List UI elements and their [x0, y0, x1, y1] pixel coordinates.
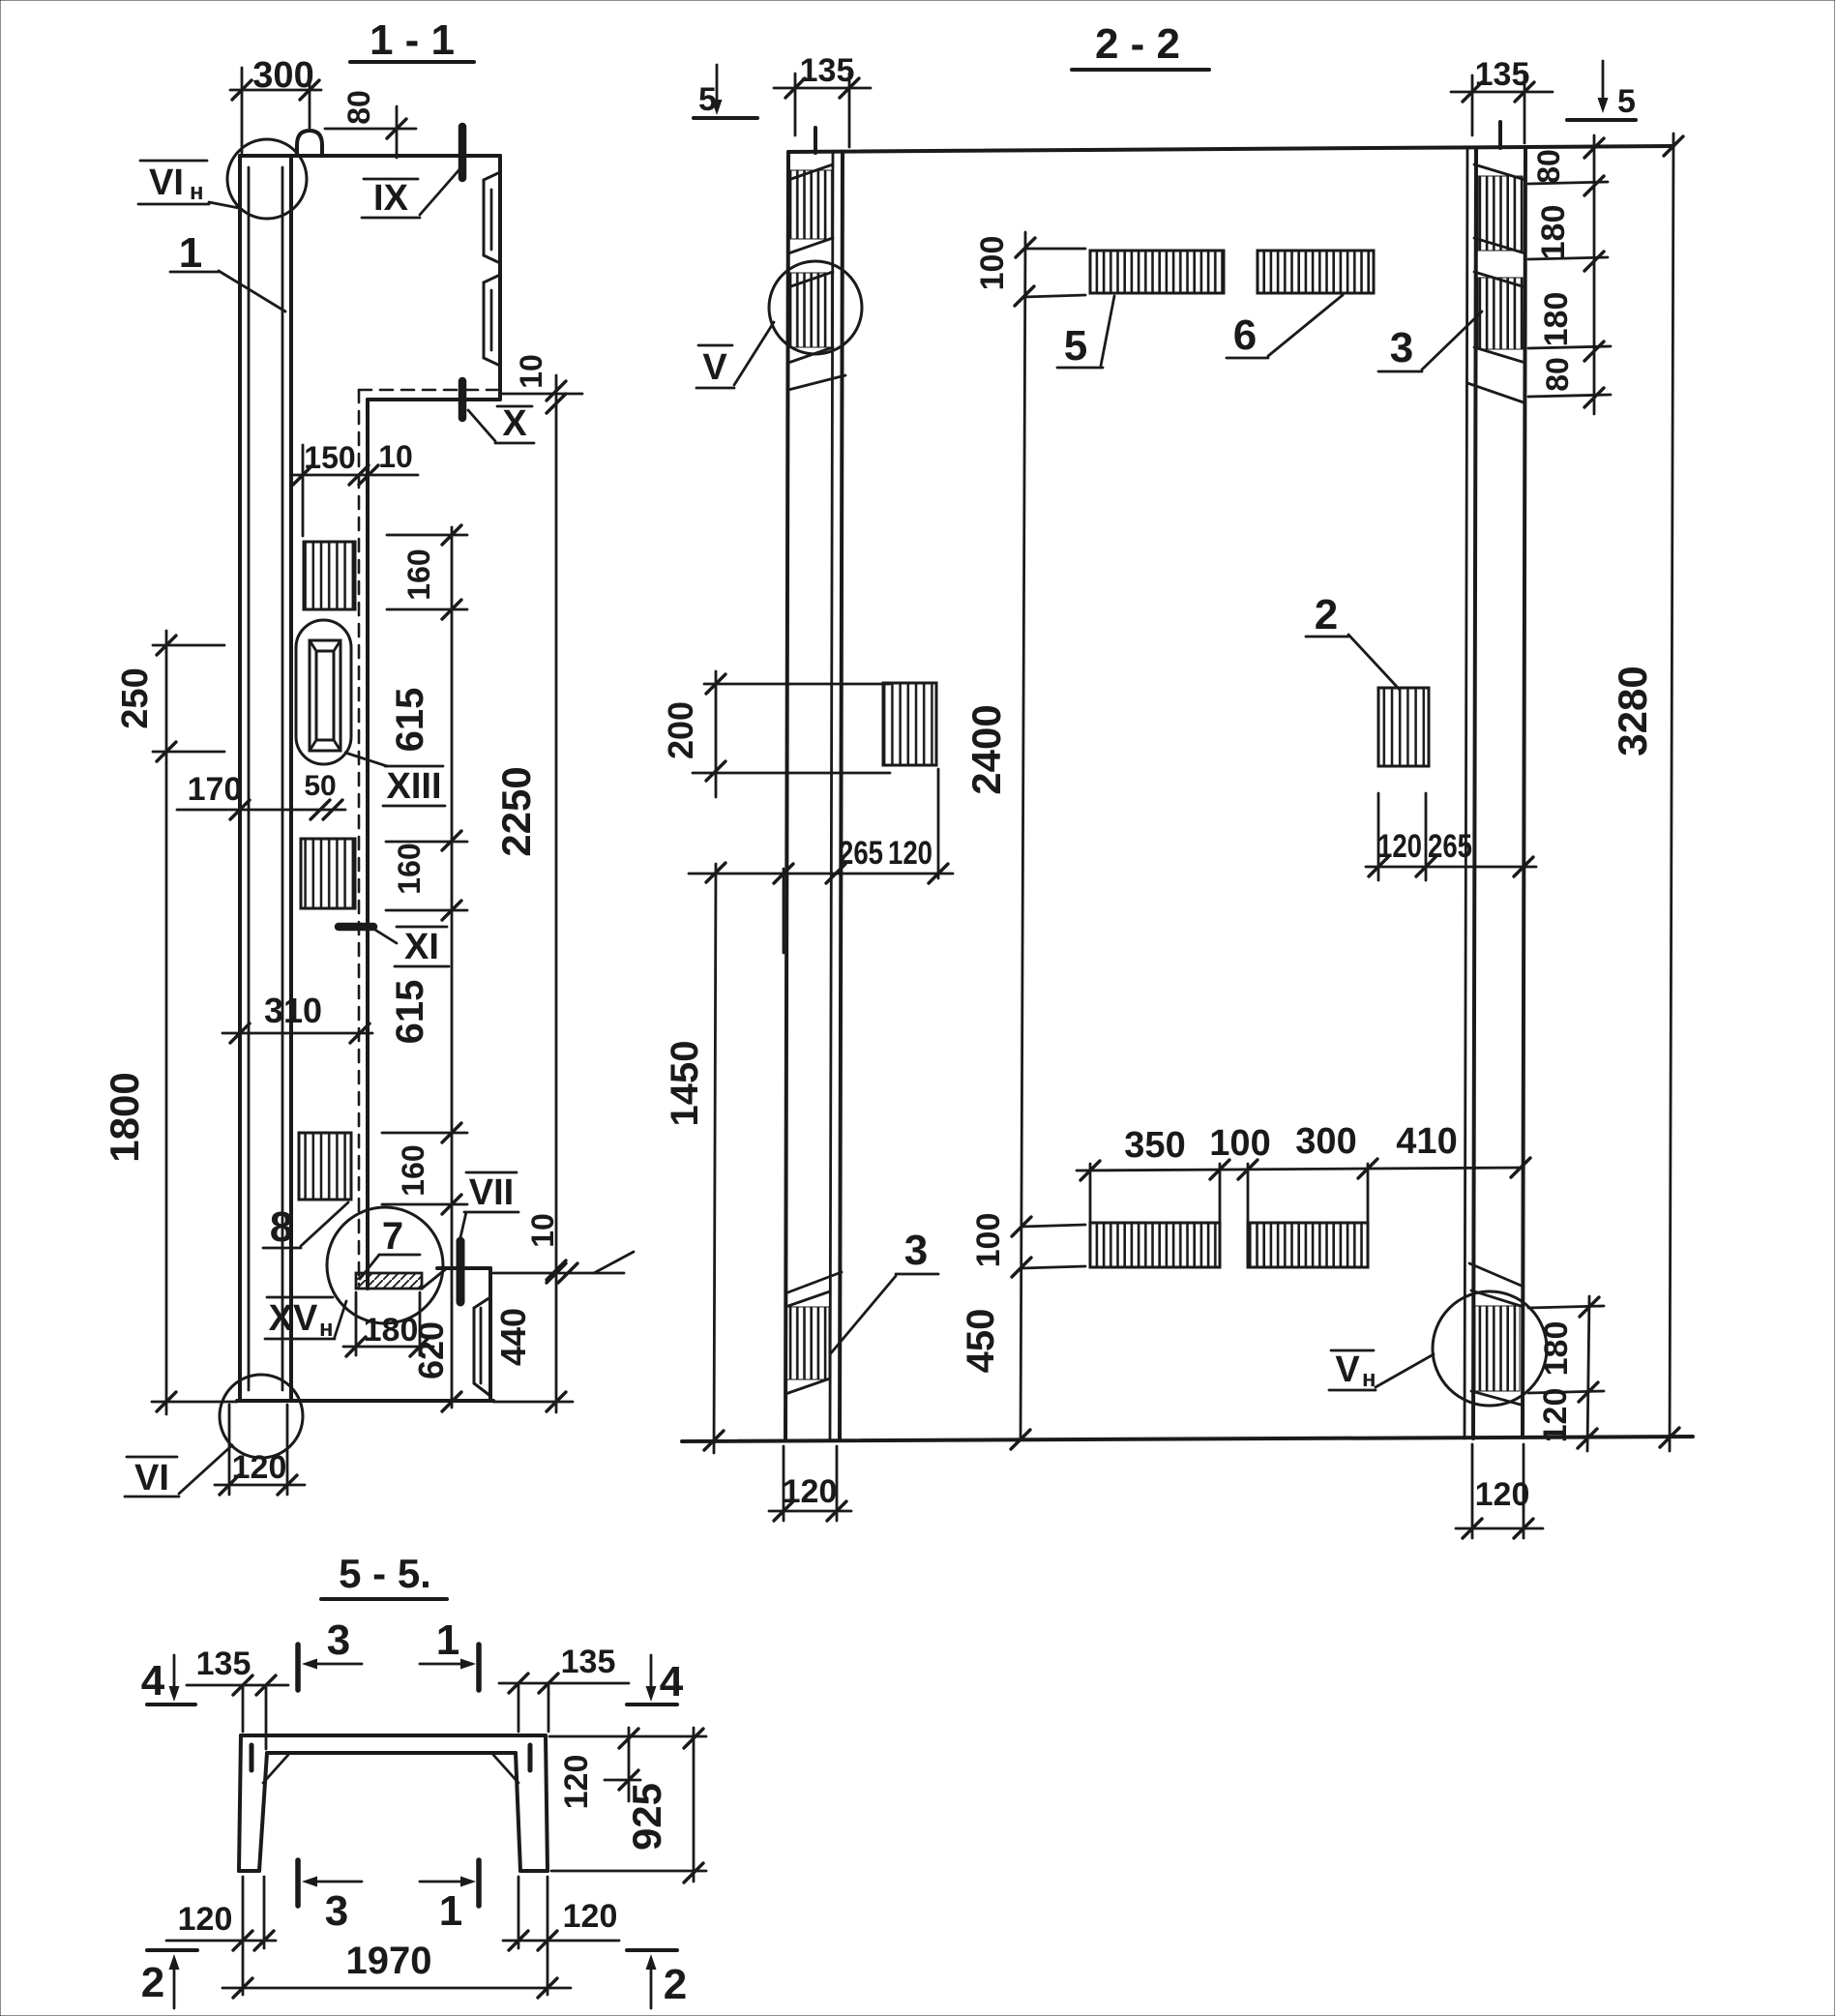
svg-text:2: 2: [664, 1961, 687, 2008]
svg-text:410: 410: [1396, 1121, 1457, 1162]
svg-text:80: 80: [341, 90, 376, 125]
svg-text:3280: 3280: [1610, 666, 1655, 756]
svg-text:440: 440: [493, 1308, 533, 1366]
svg-text:615: 615: [389, 688, 431, 753]
svg-text:н: н: [1362, 1366, 1376, 1392]
svg-text:135: 135: [800, 52, 855, 89]
svg-text:2: 2: [141, 1959, 164, 2006]
svg-text:1: 1: [439, 1887, 462, 1935]
svg-text:VII: VII: [469, 1172, 514, 1213]
svg-text:160: 160: [392, 843, 427, 894]
svg-text:IX: IX: [373, 178, 409, 219]
svg-text:5 - 5.: 5 - 5.: [339, 1551, 431, 1596]
svg-text:10: 10: [514, 354, 548, 389]
svg-text:5: 5: [1617, 83, 1636, 120]
svg-text:V: V: [1335, 1349, 1360, 1390]
svg-text:1: 1: [179, 229, 202, 277]
svg-text:925: 925: [624, 1783, 669, 1851]
svg-text:1 - 1: 1 - 1: [370, 16, 455, 64]
svg-text:180: 180: [1538, 1321, 1575, 1377]
svg-text:160: 160: [401, 548, 436, 600]
svg-text:3: 3: [1390, 324, 1413, 371]
svg-text:120: 120: [178, 1901, 233, 1938]
svg-text:120: 120: [888, 835, 932, 872]
svg-text:265: 265: [839, 835, 883, 872]
svg-text:200: 200: [661, 701, 700, 759]
svg-text:310: 310: [264, 991, 322, 1030]
svg-text:10: 10: [378, 439, 413, 474]
svg-text:615: 615: [389, 980, 431, 1045]
svg-text:XIII: XIII: [386, 766, 441, 807]
svg-text:2250: 2250: [493, 766, 539, 856]
svg-text:120: 120: [1475, 1476, 1530, 1513]
svg-text:120: 120: [232, 1449, 287, 1486]
svg-text:120: 120: [1537, 1388, 1574, 1443]
svg-text:5: 5: [1064, 322, 1087, 370]
svg-text:300: 300: [1295, 1121, 1356, 1162]
svg-text:1800: 1800: [102, 1072, 147, 1162]
svg-text:3: 3: [904, 1227, 928, 1274]
svg-text:X: X: [502, 403, 527, 444]
svg-text:2 - 2: 2 - 2: [1095, 20, 1180, 68]
svg-text:50: 50: [304, 770, 336, 802]
svg-text:180: 180: [1538, 292, 1575, 347]
svg-text:н: н: [190, 179, 204, 205]
svg-text:1450: 1450: [664, 1041, 706, 1127]
svg-text:120: 120: [783, 1473, 838, 1510]
svg-text:80: 80: [1540, 357, 1575, 392]
svg-text:3: 3: [327, 1616, 350, 1664]
svg-text:160: 160: [396, 1144, 430, 1196]
svg-text:2400: 2400: [963, 704, 1009, 794]
svg-text:120: 120: [558, 1755, 595, 1810]
svg-text:120: 120: [563, 1898, 618, 1935]
svg-text:4: 4: [141, 1657, 165, 1705]
svg-text:180: 180: [364, 1312, 419, 1349]
svg-text:7: 7: [382, 1215, 403, 1258]
svg-text:100: 100: [974, 236, 1011, 291]
svg-text:265: 265: [1428, 828, 1472, 865]
svg-text:10: 10: [525, 1213, 560, 1248]
svg-text:180: 180: [1535, 205, 1572, 260]
svg-text:XV: XV: [269, 1298, 318, 1339]
svg-text:135: 135: [196, 1645, 252, 1682]
svg-text:350: 350: [1124, 1125, 1185, 1166]
svg-text:100: 100: [1209, 1123, 1270, 1164]
svg-text:170: 170: [188, 771, 243, 808]
svg-text:VI: VI: [134, 1458, 169, 1498]
svg-text:8: 8: [270, 1203, 293, 1251]
svg-text:135: 135: [1475, 56, 1530, 93]
svg-text:120: 120: [1377, 828, 1422, 865]
svg-text:250: 250: [115, 667, 156, 728]
svg-text:VI: VI: [149, 163, 184, 203]
svg-text:6: 6: [1233, 311, 1257, 359]
svg-text:3: 3: [325, 1887, 348, 1935]
svg-text:V: V: [702, 347, 727, 388]
svg-text:4: 4: [660, 1658, 684, 1705]
svg-text:80: 80: [1531, 149, 1566, 184]
svg-text:100: 100: [970, 1213, 1007, 1268]
svg-text:135: 135: [561, 1644, 616, 1680]
svg-text:300: 300: [252, 55, 313, 96]
svg-text:1970: 1970: [346, 1940, 432, 1982]
svg-text:2: 2: [1315, 591, 1338, 638]
svg-text:150: 150: [304, 440, 355, 475]
svg-text:450: 450: [960, 1309, 1002, 1374]
svg-text:XI: XI: [404, 927, 439, 967]
svg-text:1: 1: [436, 1616, 459, 1664]
